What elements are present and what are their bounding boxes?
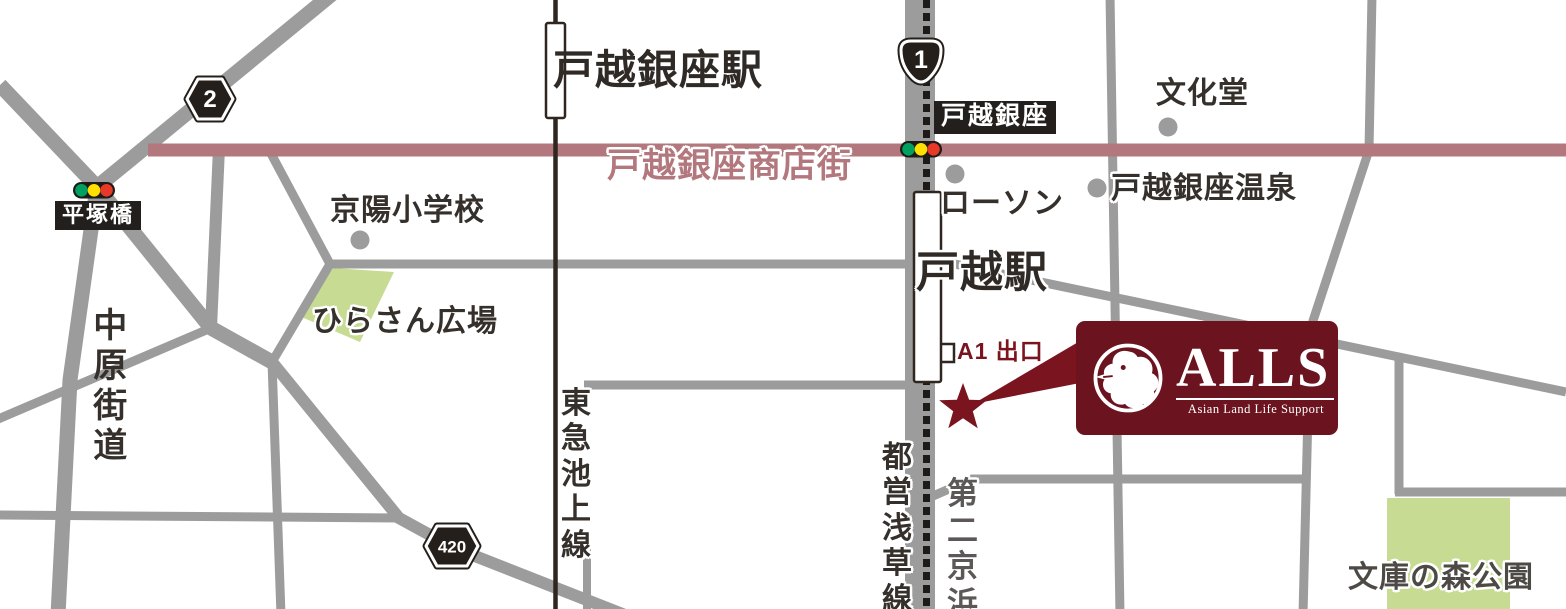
alls-logo-box: ALLS Asian Land Life Support: [1076, 321, 1338, 435]
hiratsukabashi-signal-icon: [73, 182, 115, 199]
alls-logo-text: ALLS Asian Land Life Support: [1176, 340, 1336, 416]
route-1-badge-icon: 1: [901, 41, 941, 82]
ikegami-line-label: 東急池上線: [560, 386, 593, 563]
road-vertical-east-1: [1110, 0, 1120, 609]
road-diagonal-from-street: [268, 148, 330, 264]
alls-subtitle: Asian Land Life Support: [1176, 403, 1336, 416]
access-map: 2 420 1 戸越銀座駅 戸越銀座商店街 平塚橋 中原街道 京陽小学校 ひらさ…: [0, 0, 1566, 609]
road-vertical-east-2: [1303, 0, 1372, 609]
route-2-badge-icon: 2: [187, 79, 233, 119]
asakusa-line-label: 都営浅草線: [881, 440, 914, 609]
route-420-badge-icon: 420: [426, 526, 478, 566]
togoshi-station-label: 戸越駅: [916, 252, 1048, 295]
road-network: [0, 0, 1566, 609]
bunkado-label: 文化堂: [1156, 79, 1249, 109]
togoshi-ginza-station-label: 戸越銀座駅: [553, 50, 763, 91]
bunko-no-mori-park-label: 文庫の森公園: [1348, 563, 1534, 593]
road-vertical-center-west: [272, 362, 281, 609]
alls-lion-icon: [1084, 332, 1172, 424]
map-canvas: 2 420 1: [0, 0, 1566, 609]
alls-title: ALLS: [1176, 340, 1336, 396]
dai-ni-keihin-label: 第二京浜: [946, 476, 980, 609]
keiyo-school-dot: [351, 231, 370, 250]
nakahara-kaido-label: 中原街道: [92, 306, 129, 466]
alls-rule-line: [1176, 398, 1334, 400]
route-420-number: 420: [438, 538, 466, 557]
lawson-label: ローソン: [940, 189, 1064, 219]
keiyo-elementary-label: 京陽小学校: [330, 196, 485, 226]
road-horizontal-sw: [0, 515, 399, 518]
lawson-dot: [946, 165, 965, 184]
togoshi-ginza-onsen-label: 戸越銀座温泉: [1111, 174, 1297, 204]
hiratsukabashi-label: 平塚橋: [55, 201, 141, 230]
shopping-street-label: 戸越銀座商店街: [607, 149, 852, 183]
destination-star-icon: [939, 383, 987, 428]
route-1-number: 1: [914, 46, 928, 74]
togoshi-ginza-signal-icon: [900, 141, 942, 158]
onsen-dot: [1088, 179, 1107, 198]
bunkado-dot: [1159, 118, 1178, 137]
road-vertical-west: [211, 148, 219, 328]
route-2-number: 2: [203, 86, 216, 113]
togoshi-ginza-signal-label: 戸越銀座: [934, 101, 1056, 134]
hirasan-plaza-label: ひらさん広場: [312, 307, 498, 337]
a1-exit-label: A1 出口: [957, 340, 1044, 363]
